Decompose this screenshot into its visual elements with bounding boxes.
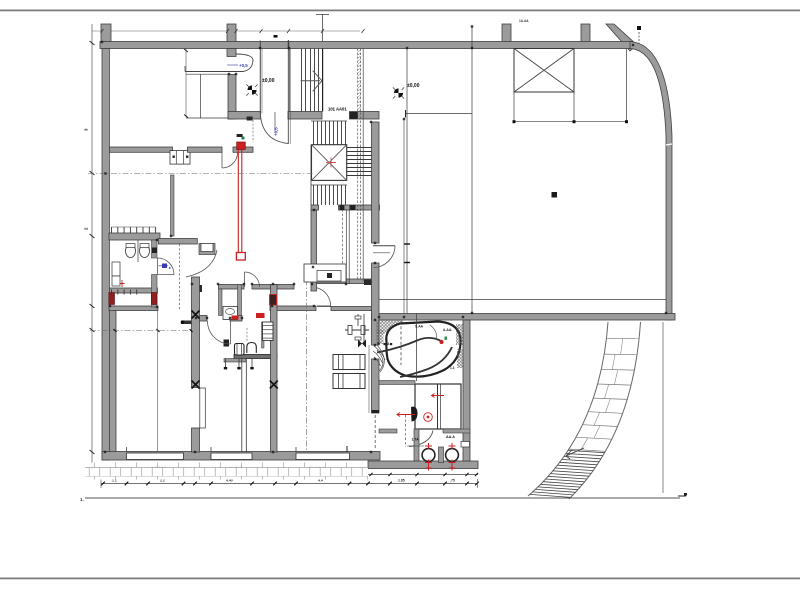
- svg-text:1A.AA: 1A.AA: [519, 19, 529, 23]
- svg-text:1.: 1.: [80, 497, 84, 502]
- svg-text:+0,5: +0,5: [239, 63, 248, 68]
- svg-text:AA.A: AA.A: [446, 435, 455, 439]
- svg-text:.75: .75: [450, 479, 455, 483]
- svg-text:±0,00: ±0,00: [262, 78, 275, 84]
- svg-text:AA: AA: [385, 342, 390, 346]
- svg-text:1.7A: 1.7A: [412, 438, 420, 442]
- svg-text:1.85: 1.85: [398, 479, 405, 483]
- svg-text:101 AA01: 101 AA01: [328, 107, 347, 112]
- svg-text:1.3: 1.3: [450, 366, 455, 370]
- svg-text:+0,5: +0,5: [274, 127, 279, 136]
- svg-text:A.AA.: A.AA.: [443, 328, 452, 332]
- svg-text:S.AA: S.AA: [415, 325, 424, 329]
- svg-text:±0,00: ±0,00: [407, 83, 420, 89]
